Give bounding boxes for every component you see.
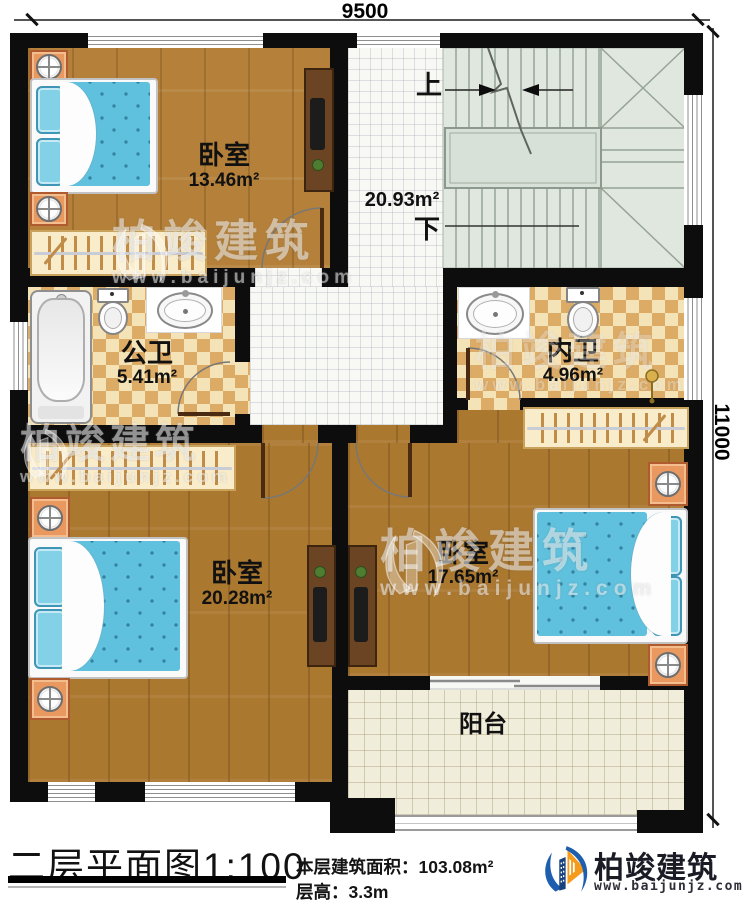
room-area: 13.46m² xyxy=(174,171,274,191)
floor-height-label: 层高： xyxy=(296,882,349,902)
room-label: 卧室 xyxy=(413,540,513,567)
stair-down-label: 下 xyxy=(412,216,442,243)
doors-overlay xyxy=(0,0,750,906)
floor-plan: 卧室 13.46m² 20.93m² 公卫 5.41m² 内卫 4.96m² 卧… xyxy=(0,0,750,906)
stair-up-label: 上 xyxy=(414,72,444,99)
room-label: 卧室 xyxy=(174,142,274,169)
room-label: 内卫 xyxy=(523,338,623,365)
room-label: 阳台 xyxy=(433,712,533,737)
door-arc xyxy=(178,208,520,498)
floor-height-text: 层高：3.3m xyxy=(296,879,388,904)
brand-logo-icon xyxy=(542,843,592,897)
faucet-icon xyxy=(182,290,189,297)
title-underline xyxy=(8,876,286,883)
faucet-icon xyxy=(492,291,499,298)
floor-area-value: 103.08m² xyxy=(419,857,494,877)
drain-icon xyxy=(183,309,188,314)
room-area: 20.93m² xyxy=(347,190,457,211)
room-area: 5.41m² xyxy=(97,368,197,388)
floor-area-label: 本层建筑面积： xyxy=(296,857,419,877)
room-area: 4.96m² xyxy=(523,366,623,386)
title-underline-thin xyxy=(8,886,286,888)
room-label: 卧室 xyxy=(187,560,287,587)
room-label: 公卫 xyxy=(97,340,197,367)
dimension-height: 11000 xyxy=(709,392,733,472)
room-area: 20.28m² xyxy=(182,589,292,609)
shower-icon xyxy=(646,370,658,404)
dimension-line xyxy=(14,19,710,21)
sliding-door xyxy=(430,681,600,689)
drain-icon xyxy=(493,312,498,317)
brand-url: www.baijunjz.com xyxy=(594,879,743,894)
floor-area-text: 本层建筑面积：103.08m² xyxy=(296,854,493,879)
room-area: 17.65m² xyxy=(408,568,518,588)
floor-height-value: 3.3m xyxy=(349,882,389,902)
